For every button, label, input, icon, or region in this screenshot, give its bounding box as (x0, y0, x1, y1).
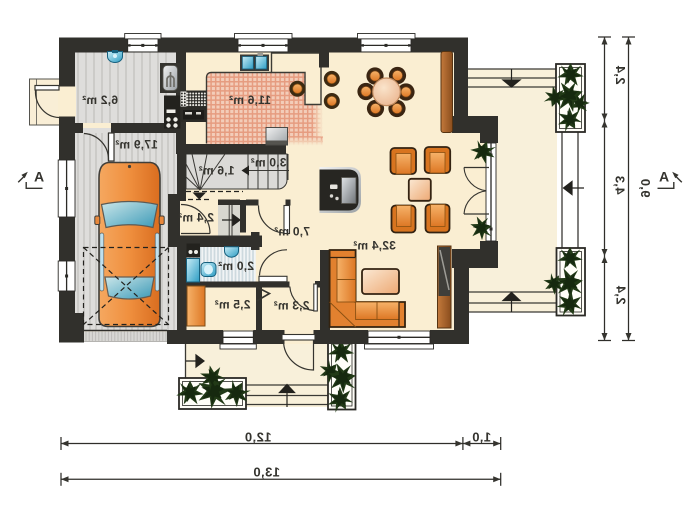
svg-text:11,6 m²: 11,6 m² (229, 93, 271, 107)
svg-text:2,5 m²: 2,5 m² (215, 298, 251, 312)
svg-text:2,4: 2,4 (614, 285, 629, 305)
svg-text:2,3 m²: 2,3 m² (274, 299, 310, 313)
svg-text:A: A (34, 169, 44, 185)
svg-text:A: A (659, 169, 669, 185)
svg-text:17,9 m²: 17,9 m² (115, 138, 158, 152)
svg-text:2,4 m²: 2,4 m² (178, 211, 214, 225)
svg-text:4,3: 4,3 (613, 175, 628, 194)
svg-text:12,0: 12,0 (245, 430, 272, 445)
svg-text:6,2 m²: 6,2 m² (82, 93, 118, 107)
svg-text:2,0 m²: 2,0 m² (218, 259, 254, 273)
svg-text:9,0: 9,0 (638, 178, 653, 197)
svg-text:32,4 m²: 32,4 m² (353, 239, 396, 253)
svg-text:1,0: 1,0 (472, 430, 491, 445)
svg-text:13,0: 13,0 (253, 465, 280, 480)
svg-text:3,0 m²: 3,0 m² (251, 156, 287, 170)
svg-text:7,0 m²: 7,0 m² (274, 225, 310, 239)
svg-text:1,6 m²: 1,6 m² (199, 164, 235, 178)
svg-text:2,4: 2,4 (613, 65, 628, 85)
